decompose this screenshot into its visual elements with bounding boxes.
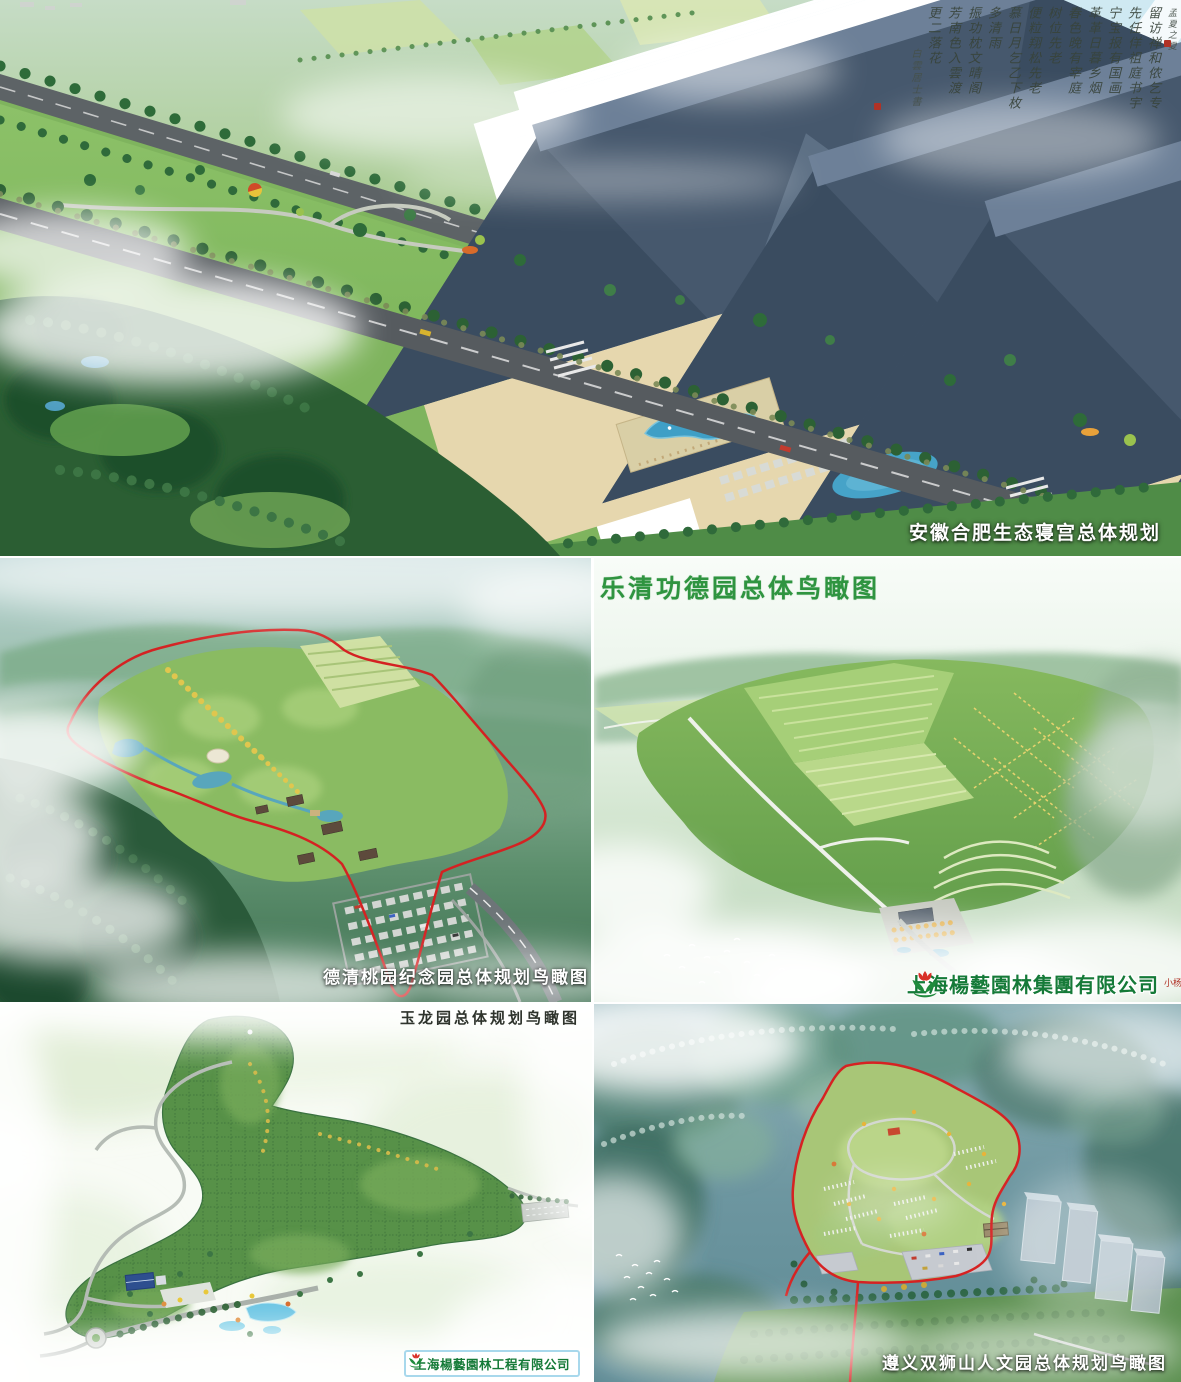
calligraphy-column: 便粒翔松先老 bbox=[1026, 6, 1039, 96]
calligraphy-column: 树位先老 bbox=[1046, 6, 1059, 66]
panel-caption-zunyi: 遵义双狮山人文园总体规划鸟瞰图 bbox=[882, 1349, 1167, 1374]
panel-caption-hefei: 安徽合肥生态寝宫总体规划 bbox=[909, 518, 1161, 545]
company-seal: 小杨 bbox=[1164, 979, 1175, 988]
calligraphy-column: 先任佯祖庭书宇 bbox=[1126, 6, 1139, 111]
flower-logo-icon bbox=[406, 1352, 426, 1369]
calligraphy-signature: 白雲居士書 bbox=[909, 48, 919, 108]
deqing-aerial-art bbox=[0, 558, 591, 1002]
panel-caption-yulong: 玉龙园总体规划鸟瞰图 bbox=[400, 1007, 580, 1028]
yulong-aerial-art bbox=[0, 1004, 592, 1382]
panel-deqing-rendering: 德清桃园纪念园总体规划鸟瞰图 bbox=[0, 558, 591, 1002]
round-plaza bbox=[207, 749, 229, 763]
panel-yulong-rendering: 玉龙园总体规划鸟瞰图 上海楊藝園林工程有限公司 bbox=[0, 1004, 592, 1382]
calligraphy-column: 春色晚有宰庭 bbox=[1066, 6, 1079, 96]
company-logo: 上海楊藝園林集團有限公司 小杨 bbox=[907, 969, 1175, 998]
company-name: 上海楊藝園林工程有限公司 bbox=[414, 1354, 570, 1373]
panel-zunyi-rendering: 遵义双狮山人文园总体规划鸟瞰图 bbox=[594, 1004, 1181, 1382]
calligraphy-column: 芳南色入雲渡 bbox=[946, 6, 959, 96]
calligraphy-seal bbox=[1164, 40, 1171, 47]
calligraphy-column: 留访禅和侬乞专 bbox=[1146, 6, 1159, 111]
panel-yueqing-rendering: 乐清功德园总体鸟瞰图 上海楊藝園林集團有限公司 小杨 bbox=[594, 558, 1181, 1002]
calligraphy-poem: 孟夏之夏 留访禅和侬乞专 先任佯祖庭书宇 宁宝报有国画 革革日暮乡烟 春色晚有宰… bbox=[909, 6, 1175, 111]
calligraphy-column: 慕日月乞乙下枚 bbox=[1006, 6, 1019, 111]
portfolio-collage: 孟夏之夏 留访禅和侬乞专 先任佯祖庭书宇 宁宝报有国画 革革日暮乡烟 春色晚有宰… bbox=[0, 0, 1181, 1382]
company-name: 上海楊藝園林集團有限公司 bbox=[907, 969, 1159, 998]
calligraphy-column: 更二落花 bbox=[926, 6, 939, 66]
calligraphy-seal bbox=[874, 103, 881, 110]
service-building bbox=[983, 1222, 1008, 1237]
panel-title-yueqing: 乐清功德园总体鸟瞰图 bbox=[600, 569, 880, 605]
company-logo-box: 上海楊藝園林工程有限公司 bbox=[404, 1350, 580, 1377]
yueqing-aerial-art bbox=[594, 558, 1181, 1002]
panel-caption-deqing: 德清桃园纪念园总体规划鸟瞰图 bbox=[323, 963, 589, 988]
calligraphy-column: 振功枕文晴阁 bbox=[966, 6, 979, 96]
flower-logo-icon bbox=[907, 969, 943, 1000]
modern-buildings bbox=[1004, 1174, 1181, 1314]
panel-hefei-rendering: 孟夏之夏 留访禅和侬乞专 先任佯祖庭书宇 宁宝报有国画 革革日暮乡烟 春色晚有宰… bbox=[0, 0, 1181, 556]
zunyi-aerial-art bbox=[594, 1004, 1181, 1382]
calligraphy-column: 多清雨 bbox=[986, 6, 999, 51]
calligraphy-column: 革革日暮乡烟 bbox=[1086, 6, 1099, 96]
calligraphy-column: 宁宝报有国画 bbox=[1106, 6, 1119, 96]
